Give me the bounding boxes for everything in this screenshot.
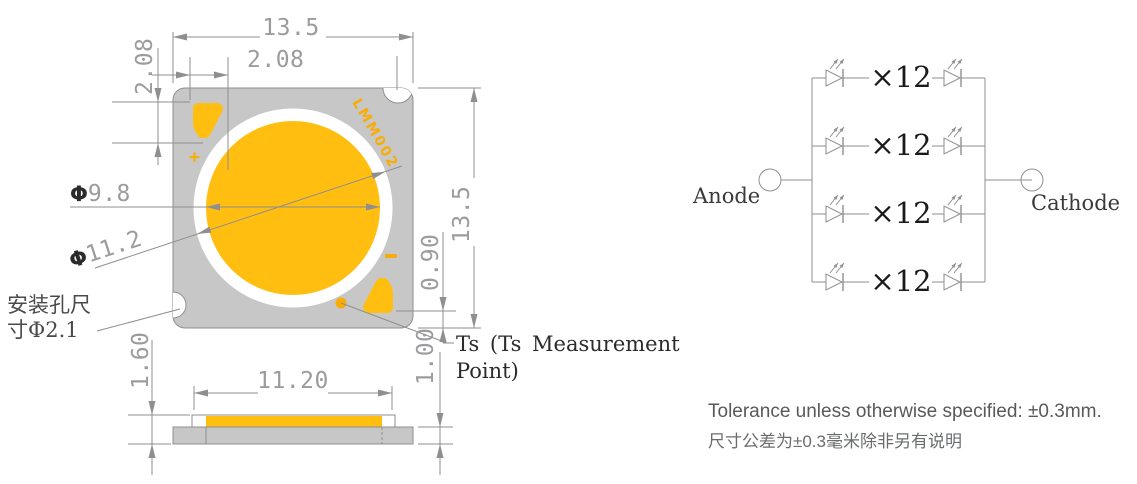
led-datasheet-drawing: + LMM002 13.5 2.08 2.08 Φ9.8 — [0, 0, 1137, 484]
side-view-phosphor-layer — [206, 416, 382, 427]
tolerance-note-zh: 尺寸公差为±0.3毫米除非另有说明 — [708, 432, 962, 451]
circuit-diagram: Anode Cathode ×12 ×12 ×12 ×12 — [692, 59, 1120, 298]
phi-symbol: Φ — [70, 182, 88, 206]
side-view-substrate — [173, 427, 413, 444]
led-symbol — [944, 263, 962, 291]
cathode-label: Cathode — [1031, 191, 1120, 215]
plus-polarity-mark: + — [189, 147, 200, 168]
dim-total-thickness-label: 1.60 — [128, 332, 154, 389]
mounting-notch-top — [383, 73, 413, 103]
led-symbol — [944, 127, 962, 155]
mount-hole-note-line2: 寸Φ2.1 — [7, 318, 79, 342]
branch-count-label: ×12 — [870, 264, 931, 298]
ts-note-line2: Point) — [456, 359, 519, 383]
dim-overall-height-label: 13.5 — [449, 186, 475, 243]
package-side-view — [173, 415, 413, 444]
branch-count-label: ×12 — [870, 128, 931, 162]
led-symbol — [826, 263, 844, 291]
dim-overall-width-label: 13.5 — [262, 15, 319, 41]
led-symbol — [944, 59, 962, 87]
anode-label: Anode — [692, 184, 760, 208]
dim-pad-width-label: 2.08 — [247, 47, 304, 73]
dim-dam-dia-label: Φ11.2 — [66, 226, 146, 274]
dim-emitting-dia-label: Φ9.8 — [70, 181, 131, 207]
branch-count-label: ×12 — [870, 196, 931, 230]
tolerance-note-en: Tolerance unless otherwise specified: ±0… — [708, 401, 1102, 422]
branch-count-label: ×12 — [870, 60, 931, 94]
led-symbol — [944, 195, 962, 223]
dim-pad-to-edge-label: 0.90 — [418, 234, 444, 291]
minus-polarity-mark — [385, 254, 397, 258]
mount-hole-note-line1: 安装孔尺 — [7, 293, 91, 317]
circuit-wires — [781, 78, 1032, 282]
light-emitting-surface — [206, 121, 380, 295]
anode-terminal — [759, 169, 781, 191]
drawing-svg: + LMM002 13.5 2.08 2.08 Φ9.8 — [0, 0, 1137, 484]
dim-pad-height-label: 2.08 — [132, 38, 158, 95]
led-symbol — [826, 59, 844, 87]
package-top-view: + LMM002 — [160, 73, 413, 328]
mounting-notch-left — [160, 292, 186, 318]
dim-les-width-label: 11.20 — [257, 368, 329, 394]
ts-note-line1: Ts (Ts Measurement — [456, 332, 680, 356]
dim-substrate-thickness-label: 1.00 — [413, 328, 439, 385]
led-symbol — [826, 195, 844, 223]
led-symbol — [826, 127, 844, 155]
